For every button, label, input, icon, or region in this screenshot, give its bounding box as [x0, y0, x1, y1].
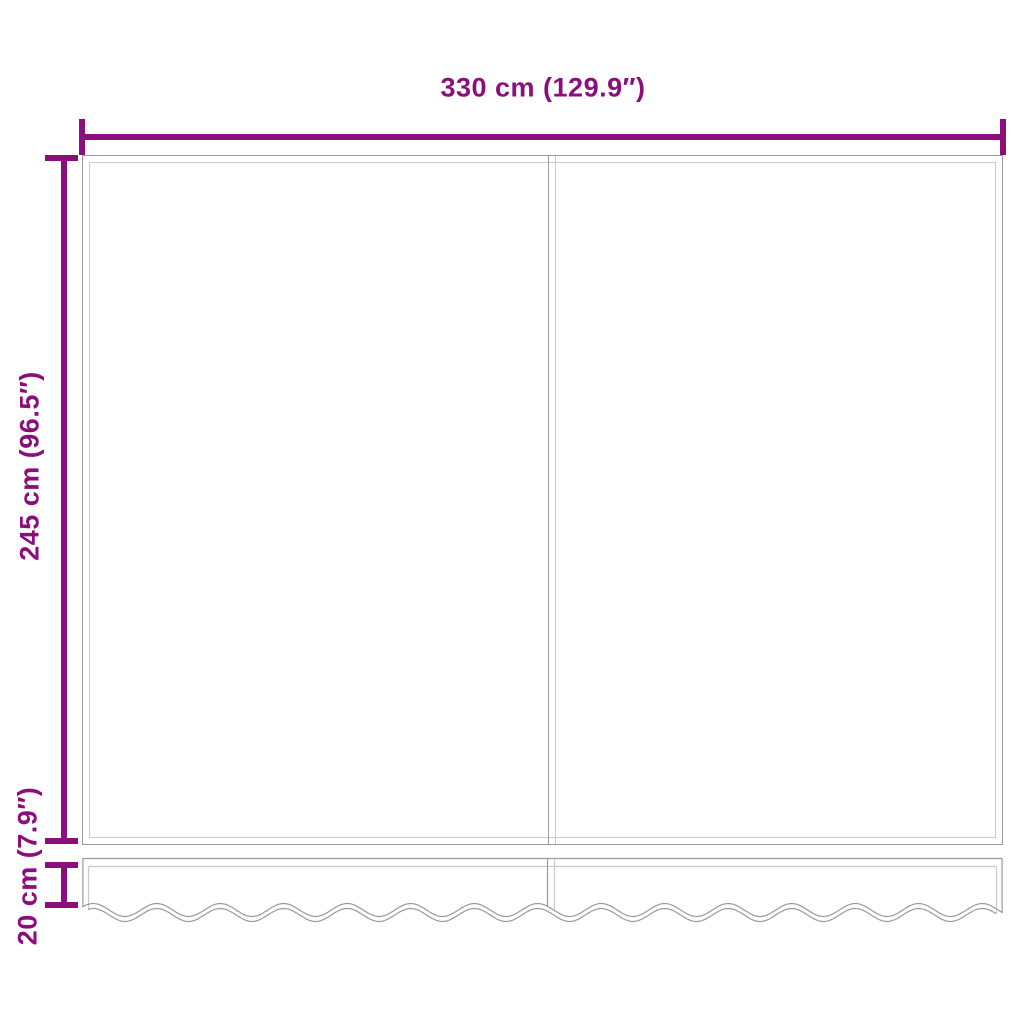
valance-dimension-bottom-tick — [45, 902, 78, 908]
height-dimension-bottom-tick — [45, 838, 78, 844]
awning-fabric-seam-outline — [89, 162, 996, 838]
width-dimension-right-tick — [1000, 119, 1006, 155]
height-dimension-top-tick — [45, 155, 78, 161]
height-dimension-line — [61, 157, 67, 841]
valance-dimension-top-tick — [45, 862, 78, 868]
panel-center-seam — [548, 156, 549, 844]
valance-outline — [82, 857, 1003, 929]
awning-fabric-panel — [82, 155, 1003, 845]
width-dimension-left-tick — [79, 119, 85, 155]
width-dimension-label: 330 cm (129.9″) — [440, 73, 645, 104]
valance-dimension-line — [61, 864, 67, 906]
product-dimension-diagram: 330 cm (129.9″) 245 cm (96.5″) 20 cm (7.… — [0, 0, 1024, 1024]
valance-dimension-label: 20 cm (7.9″) — [13, 787, 44, 946]
panel-center-seam-inner — [555, 156, 556, 844]
height-dimension-label: 245 cm (96.5″) — [15, 371, 46, 561]
width-dimension-line — [82, 134, 1003, 140]
